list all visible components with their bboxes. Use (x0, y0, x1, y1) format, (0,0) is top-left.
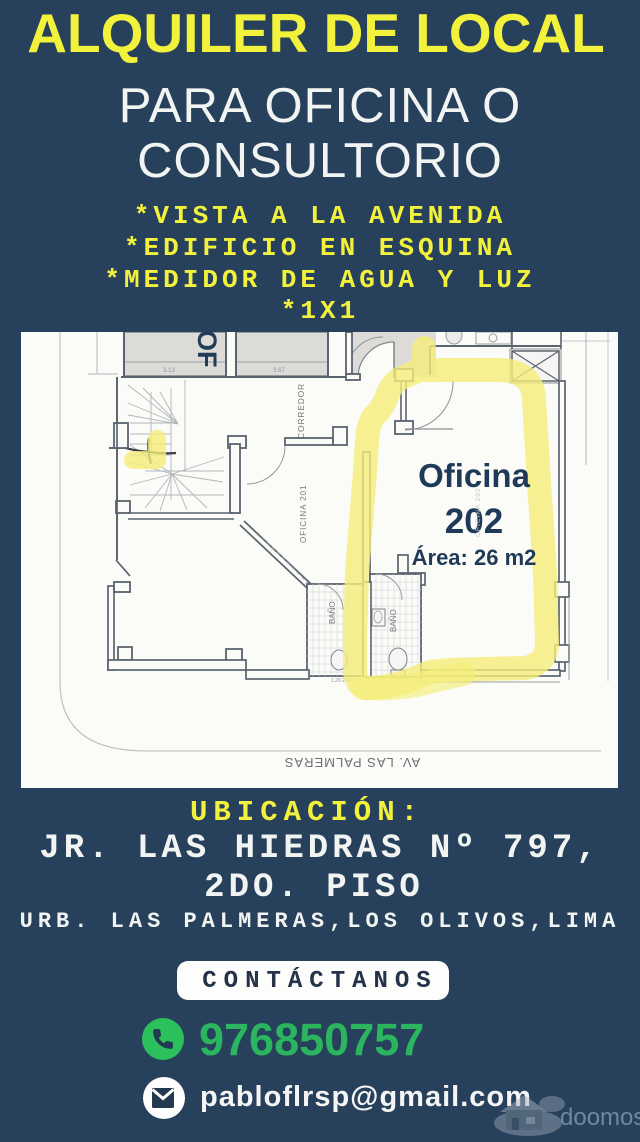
svg-text:202: 202 (445, 502, 503, 541)
svg-text:Área: 26 m2: Área: 26 m2 (412, 545, 537, 570)
svg-text:CORREDOR: CORREDOR (296, 383, 306, 439)
svg-text:3.13: 3.13 (163, 368, 175, 374)
svg-text:BAÑO: BAÑO (328, 601, 337, 624)
svg-text:AV. LAS PALMERAS: AV. LAS PALMERAS (284, 755, 420, 770)
svg-text:OFICINA 202: OFICINA 202 (475, 487, 482, 537)
svg-text:3.67: 3.67 (273, 368, 285, 374)
svg-text:BAÑO: BAÑO (389, 609, 398, 632)
svg-text:doomos: doomos (560, 1104, 640, 1131)
svg-text:OF: OF (192, 332, 222, 368)
svg-text:OFICINA 201: OFICINA 201 (299, 484, 308, 543)
